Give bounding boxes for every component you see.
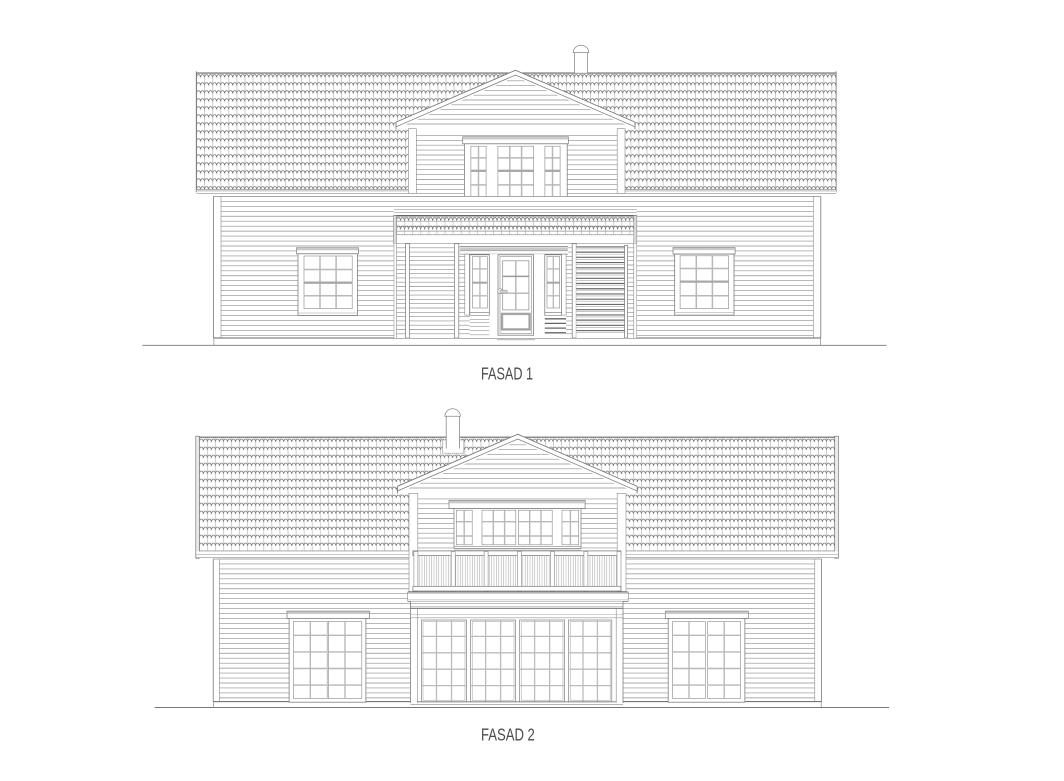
svg-text:FASAD 1: FASAD 1: [481, 363, 533, 383]
svg-text:FASAD 2: FASAD 2: [481, 725, 535, 745]
